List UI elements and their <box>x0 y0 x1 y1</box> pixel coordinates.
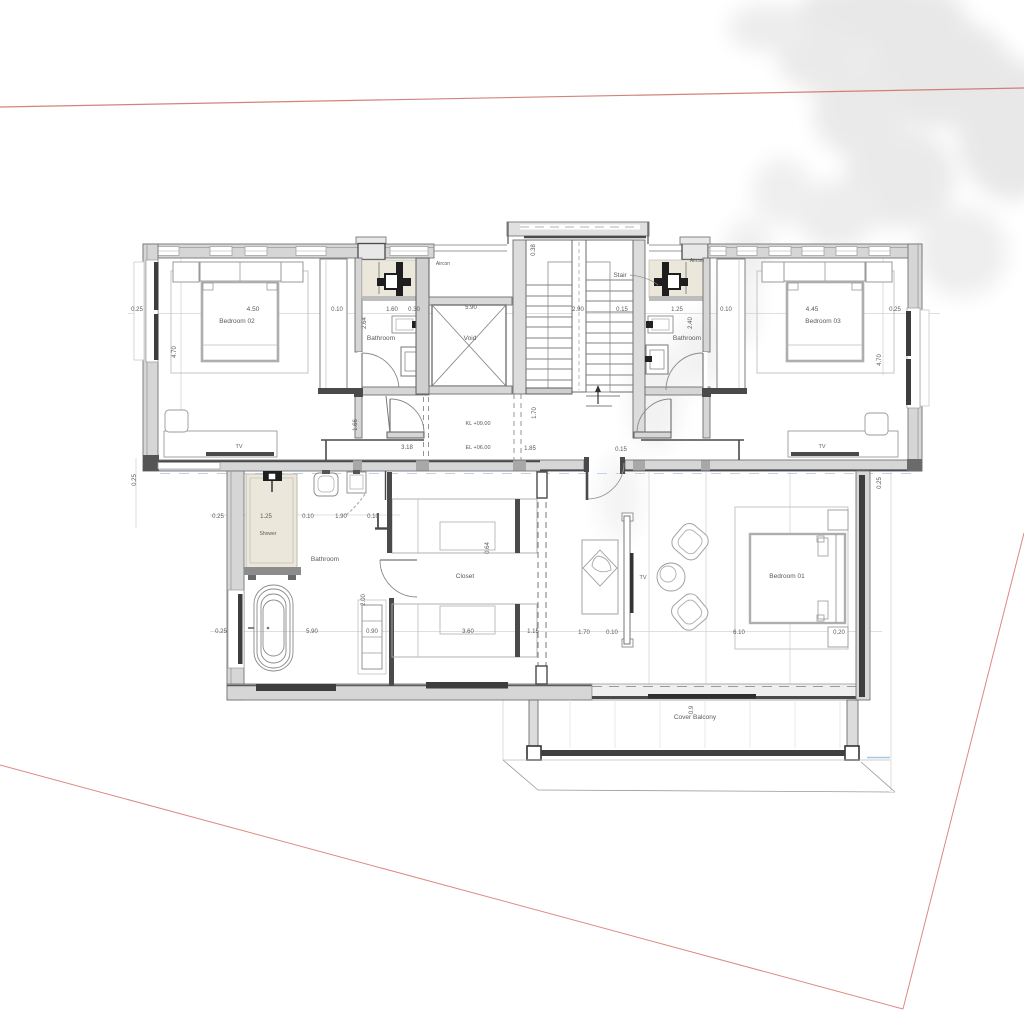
svg-text:Void: Void <box>464 335 477 342</box>
svg-text:Aircon: Aircon <box>690 258 704 264</box>
svg-text:0.25: 0.25 <box>215 629 227 635</box>
svg-text:1.85: 1.85 <box>524 446 536 452</box>
svg-text:0.10: 0.10 <box>367 514 379 520</box>
svg-text:Aircon: Aircon <box>436 261 450 267</box>
svg-text:Closet: Closet <box>456 573 475 580</box>
svg-text:2.64: 2.64 <box>362 317 368 329</box>
svg-text:2.90: 2.90 <box>572 307 584 313</box>
svg-text:4.50: 4.50 <box>247 306 260 313</box>
svg-text:0.10: 0.10 <box>720 307 732 313</box>
svg-text:5.90: 5.90 <box>465 305 477 311</box>
svg-text:TV: TV <box>235 444 242 450</box>
svg-text:0.20: 0.20 <box>833 630 845 636</box>
svg-text:1.90: 1.90 <box>335 514 347 520</box>
svg-text:TV: TV <box>818 444 825 450</box>
svg-text:Stair: Stair <box>613 272 627 279</box>
svg-text:2.00: 2.00 <box>361 594 367 606</box>
svg-text:1.15: 1.15 <box>527 629 539 635</box>
svg-text:0.9: 0.9 <box>689 705 695 714</box>
svg-text:0.30: 0.30 <box>408 307 420 313</box>
svg-text:EL +06.00: EL +06.00 <box>465 445 490 451</box>
svg-text:5.90: 5.90 <box>306 629 318 635</box>
svg-text:2.40: 2.40 <box>688 317 694 329</box>
svg-text:1.70: 1.70 <box>532 407 538 419</box>
svg-text:Bathroom: Bathroom <box>311 556 339 563</box>
svg-text:TV: TV <box>639 575 646 581</box>
svg-text:Bathroom: Bathroom <box>673 335 701 342</box>
svg-text:Bedroom 01: Bedroom 01 <box>769 573 805 580</box>
svg-text:1.60: 1.60 <box>386 307 398 313</box>
svg-text:0.10: 0.10 <box>331 307 343 313</box>
svg-text:3.60: 3.60 <box>462 629 474 635</box>
svg-text:Bathroom: Bathroom <box>367 335 395 342</box>
svg-text:0.10: 0.10 <box>606 630 618 636</box>
svg-text:0.38: 0.38 <box>531 244 537 256</box>
svg-text:1.25: 1.25 <box>260 514 272 520</box>
svg-text:1.25: 1.25 <box>671 307 683 313</box>
svg-text:1.70: 1.70 <box>578 630 590 636</box>
svg-text:Bedroom 03: Bedroom 03 <box>805 318 841 325</box>
svg-text:4.70: 4.70 <box>877 354 883 366</box>
svg-text:Bedroom 02: Bedroom 02 <box>219 318 255 325</box>
svg-text:1.66: 1.66 <box>353 419 359 431</box>
svg-text:4.45: 4.45 <box>806 306 819 313</box>
svg-text:3.18: 3.18 <box>401 445 413 451</box>
svg-text:0.15: 0.15 <box>615 447 627 453</box>
svg-text:0.25: 0.25 <box>132 474 138 486</box>
svg-text:0.15: 0.15 <box>616 307 628 313</box>
svg-text:0.25: 0.25 <box>212 514 224 520</box>
svg-text:0.25: 0.25 <box>889 307 901 313</box>
svg-text:6.10: 6.10 <box>733 630 745 636</box>
svg-text:0.25: 0.25 <box>877 477 883 489</box>
svg-text:0.25: 0.25 <box>131 307 143 313</box>
svg-text:0.90: 0.90 <box>366 629 378 635</box>
svg-text:Shower: Shower <box>260 531 277 537</box>
svg-text:0.64: 0.64 <box>485 542 491 554</box>
svg-text:4.70: 4.70 <box>172 346 178 358</box>
svg-text:0.10: 0.10 <box>302 514 314 520</box>
svg-text:Cover Balcony: Cover Balcony <box>674 714 717 721</box>
svg-text:KL +09.00: KL +09.00 <box>465 421 490 427</box>
